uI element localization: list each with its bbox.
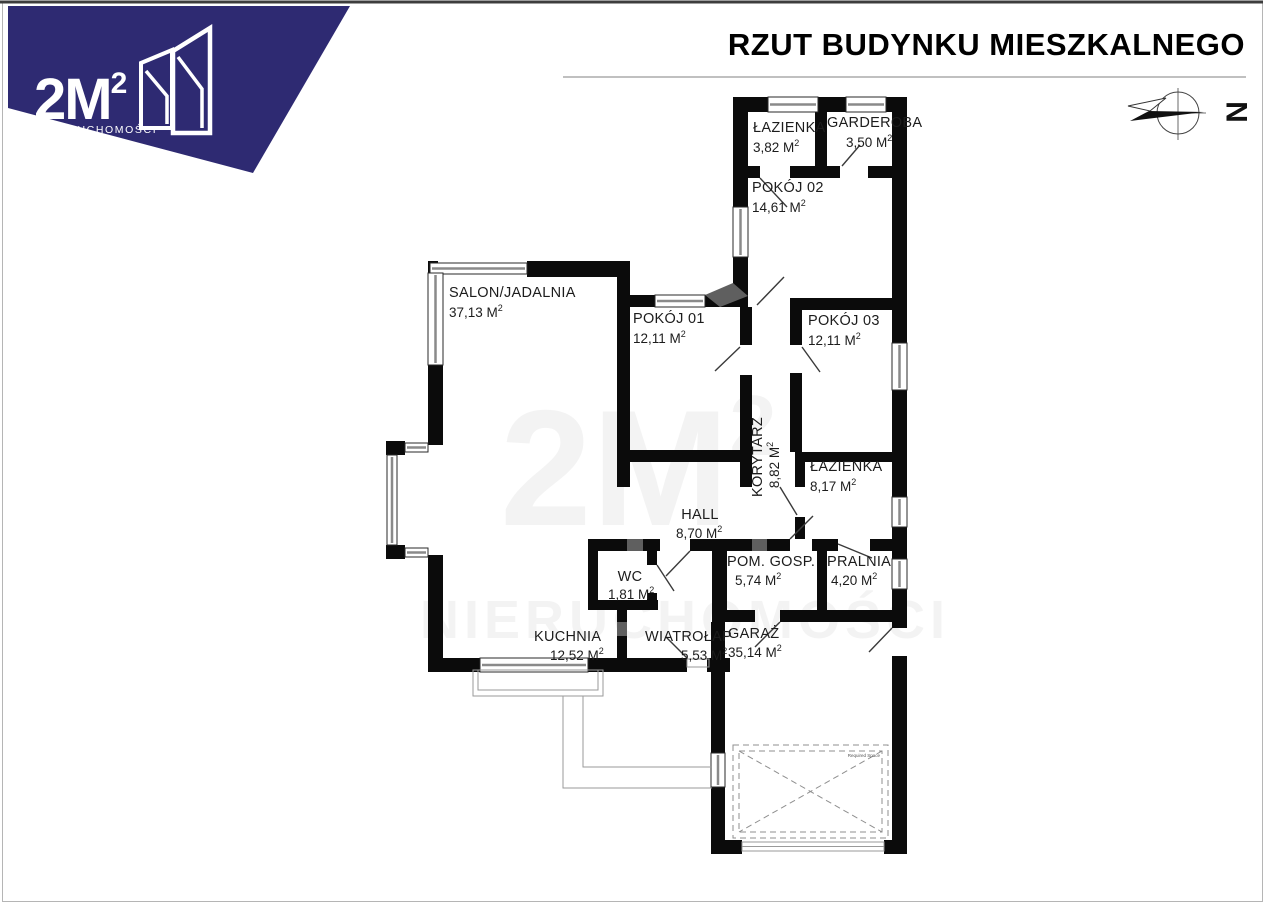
door-swing (802, 347, 820, 372)
svg-text:5,53 M2: 5,53 M2 (681, 646, 727, 663)
compass-north-letter: N (1220, 101, 1253, 123)
floor-plan-sheet: 2M2 NIERUCHOMOŚCI RZUT BUDYNKU MIESZKALN… (0, 0, 1280, 905)
window (655, 295, 705, 307)
window (892, 497, 907, 527)
room-label-garderoba: GARDEROBA 3,50 M2 (827, 115, 922, 150)
window (846, 97, 886, 112)
door-swing (715, 347, 740, 371)
room-label-pom-gosp: POM. GOSP. 5,74 M2 (727, 554, 815, 588)
svg-text:HALL: HALL (681, 507, 718, 523)
svg-text:WC: WC (618, 569, 643, 585)
svg-text:8,17 M2: 8,17 M2 (810, 477, 856, 494)
svg-text:8,82 M2: 8,82 M2 (765, 442, 782, 488)
window (430, 263, 527, 274)
svg-text:ŁAZIENKA: ŁAZIENKA (753, 120, 826, 136)
svg-text:37,13 M2: 37,13 M2 (449, 303, 503, 320)
window (733, 207, 748, 257)
room-label-pokoj-01: POKÓJ 01 12,11 M2 (633, 310, 705, 346)
window (768, 97, 818, 112)
svg-text:POKÓJ 02: POKÓJ 02 (752, 179, 824, 196)
svg-text:WIATROŁAP: WIATROŁAP (645, 629, 732, 645)
svg-text:2M2: 2M2 (500, 376, 777, 560)
room-label-pokoj-03: POKÓJ 03 12,11 M2 (808, 312, 880, 348)
room-label-salon-jadalnia: SALON/JADALNIA 37,13 M2 (449, 285, 576, 320)
window (387, 455, 397, 545)
svg-text:8,70 M2: 8,70 M2 (676, 524, 722, 541)
svg-text:12,11 M2: 12,11 M2 (633, 329, 686, 346)
door-swing (757, 277, 784, 305)
room-label-lazienka-top: ŁAZIENKA 3,82 M2 (753, 120, 826, 155)
svg-text:12,52 M2: 12,52 M2 (550, 646, 604, 663)
svg-text:4,20 M2: 4,20 M2 (831, 571, 877, 588)
door-swing (657, 565, 674, 591)
svg-text:POM. GOSP.: POM. GOSP. (727, 554, 815, 570)
door-swing (780, 487, 797, 515)
required-space-label: Required Space (848, 753, 881, 758)
window (892, 559, 907, 589)
terrace-outline (473, 670, 712, 788)
svg-text:POKÓJ 03: POKÓJ 03 (808, 312, 880, 329)
svg-text:5,74 M2: 5,74 M2 (735, 571, 781, 588)
svg-text:GARDEROBA: GARDEROBA (827, 115, 922, 131)
required-space-box: Required Space (733, 745, 888, 838)
svg-text:ŁAZIENKA: ŁAZIENKA (810, 459, 883, 475)
compass-icon: N (1128, 88, 1253, 140)
garage-door (742, 842, 884, 851)
room-label-pokoj-02: POKÓJ 02 14,61 M2 (752, 179, 824, 215)
svg-text:12,11 M2: 12,11 M2 (808, 331, 861, 348)
window (428, 273, 443, 365)
svg-text:KORYTARZ: KORYTARZ (750, 417, 766, 497)
svg-text:PRALNIA: PRALNIA (827, 554, 891, 570)
window (892, 343, 907, 390)
svg-text:1,81 M2: 1,81 M2 (608, 585, 654, 602)
window (405, 443, 428, 452)
svg-text:POKÓJ 01: POKÓJ 01 (633, 310, 705, 327)
svg-text:14,61 M2: 14,61 M2 (752, 198, 806, 215)
svg-text:3,82 M2: 3,82 M2 (753, 138, 799, 155)
svg-text:KUCHNIA: KUCHNIA (534, 629, 601, 645)
room-label-pralnia: PRALNIA 4,20 M2 (827, 554, 891, 588)
svg-text:GARAŻ: GARAŻ (728, 624, 779, 642)
brand-logo: 2M2 NIERUCHOMOŚCI (8, 6, 350, 173)
room-label-lazienka-mid: ŁAZIENKA 8,17 M2 (810, 459, 883, 494)
page-title: RZUT BUDYNKU MIESZKALNEGO (728, 27, 1245, 62)
room-label-wc: WC 1,81 M2 (608, 569, 654, 602)
window (711, 753, 725, 787)
svg-text:SALON/JADALNIA: SALON/JADALNIA (449, 285, 576, 301)
svg-text:3,50 M2: 3,50 M2 (846, 133, 892, 150)
window (405, 548, 428, 557)
svg-text:35,14 M2: 35,14 M2 (728, 643, 782, 660)
